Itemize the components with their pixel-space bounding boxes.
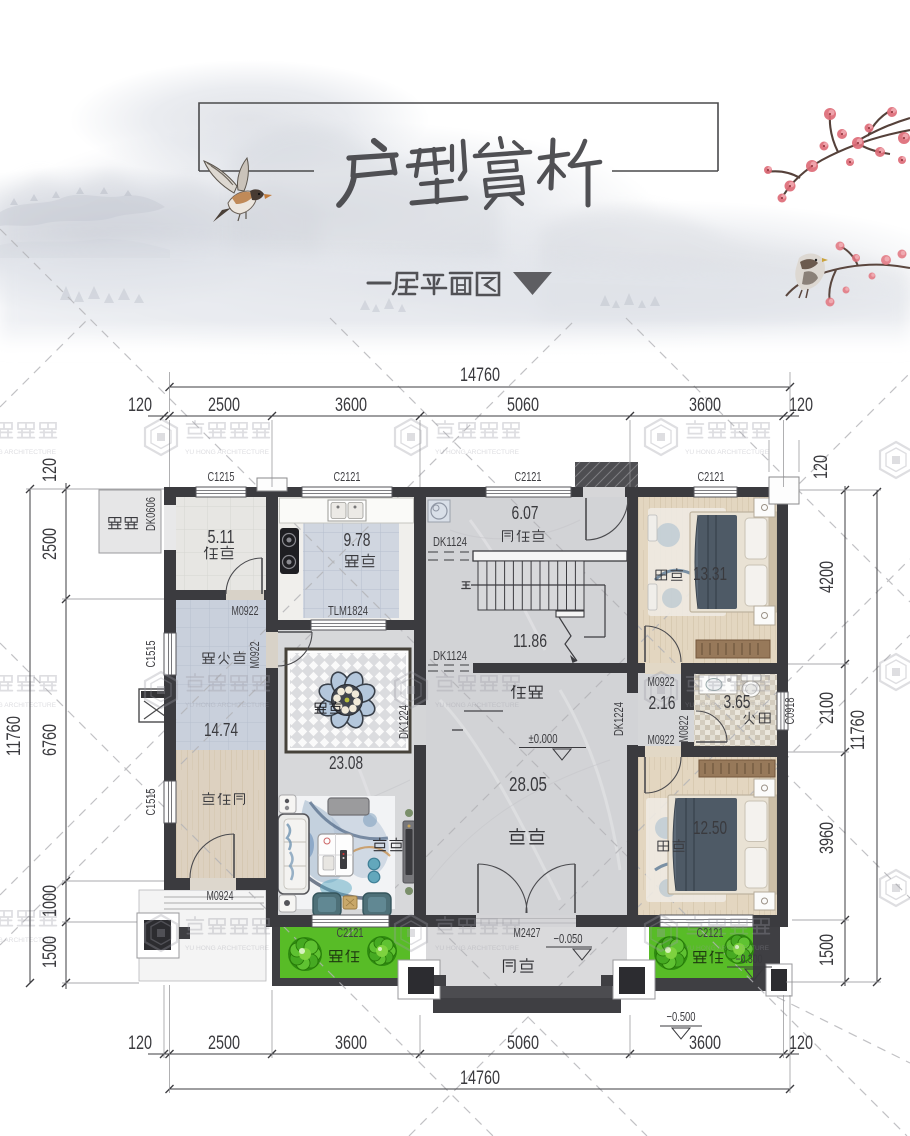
- svg-text:1500: 1500: [817, 934, 838, 966]
- svg-text:DK1124: DK1124: [433, 535, 467, 549]
- svg-text:6.07: 6.07: [512, 503, 539, 523]
- svg-text:−0.500: −0.500: [667, 1009, 696, 1024]
- svg-text:C2121: C2121: [698, 470, 725, 484]
- svg-text:C2121: C2121: [697, 926, 724, 940]
- svg-text:4200: 4200: [817, 561, 838, 593]
- svg-text:±0.000: ±0.000: [529, 731, 558, 746]
- svg-text:DK1124: DK1124: [433, 649, 467, 663]
- svg-text:C1215: C1215: [208, 470, 235, 484]
- svg-text:1500: 1500: [40, 936, 61, 968]
- svg-text:1000: 1000: [40, 885, 61, 917]
- svg-text:14.74: 14.74: [204, 720, 238, 740]
- svg-text:DK1224: DK1224: [612, 702, 626, 736]
- svg-text:28.05: 28.05: [509, 774, 547, 796]
- svg-text:120: 120: [789, 1033, 813, 1054]
- svg-text:14760: 14760: [460, 1068, 500, 1089]
- svg-text:C1515: C1515: [144, 640, 158, 667]
- svg-text:M0922: M0922: [648, 675, 675, 689]
- svg-text:23.08: 23.08: [329, 753, 363, 773]
- svg-text:5060: 5060: [507, 1033, 539, 1054]
- svg-text:DK0606: DK0606: [144, 497, 158, 531]
- svg-text:14760: 14760: [460, 365, 500, 386]
- svg-text:TLM1824: TLM1824: [328, 604, 368, 618]
- svg-text:3600: 3600: [335, 1033, 367, 1054]
- svg-text:2.16: 2.16: [649, 693, 676, 713]
- svg-text:−0.050: −0.050: [554, 931, 583, 946]
- svg-text:6760: 6760: [40, 724, 61, 756]
- svg-text:3.65: 3.65: [724, 692, 751, 712]
- svg-text:M0922: M0922: [248, 641, 262, 668]
- svg-text:12.50: 12.50: [693, 818, 727, 838]
- svg-text:11.86: 11.86: [513, 631, 547, 651]
- svg-text:3600: 3600: [689, 395, 721, 416]
- svg-text:120: 120: [128, 395, 152, 416]
- svg-text:5.11: 5.11: [208, 527, 235, 547]
- svg-text:C0918: C0918: [783, 697, 797, 724]
- svg-text:13.31: 13.31: [693, 564, 727, 584]
- svg-text:−0.300: −0.300: [736, 952, 763, 966]
- svg-text:M0922: M0922: [648, 733, 675, 747]
- svg-text:3600: 3600: [335, 395, 367, 416]
- svg-text:M0924: M0924: [207, 889, 234, 903]
- svg-text:C1515: C1515: [144, 788, 158, 815]
- svg-text:120: 120: [811, 455, 832, 479]
- svg-text:120: 120: [40, 458, 61, 482]
- svg-text:120: 120: [789, 395, 813, 416]
- svg-text:11760: 11760: [848, 710, 869, 750]
- svg-text:3600: 3600: [689, 1033, 721, 1054]
- svg-text:9.78: 9.78: [344, 530, 371, 550]
- svg-text:5060: 5060: [507, 395, 539, 416]
- svg-text:M0922: M0922: [232, 604, 259, 618]
- svg-text:C2121: C2121: [515, 470, 542, 484]
- svg-text:3960: 3960: [817, 822, 838, 854]
- svg-text:M2427: M2427: [514, 926, 541, 940]
- svg-text:2500: 2500: [208, 1033, 240, 1054]
- svg-text:2100: 2100: [817, 692, 838, 724]
- svg-text:C2121: C2121: [334, 470, 361, 484]
- svg-text:11760: 11760: [4, 716, 25, 756]
- svg-text:2500: 2500: [40, 528, 61, 560]
- svg-text:C2121: C2121: [337, 926, 364, 940]
- svg-text:M0822: M0822: [677, 715, 691, 742]
- svg-text:120: 120: [128, 1033, 152, 1054]
- svg-text:2500: 2500: [208, 395, 240, 416]
- svg-text:DK1224: DK1224: [397, 705, 411, 739]
